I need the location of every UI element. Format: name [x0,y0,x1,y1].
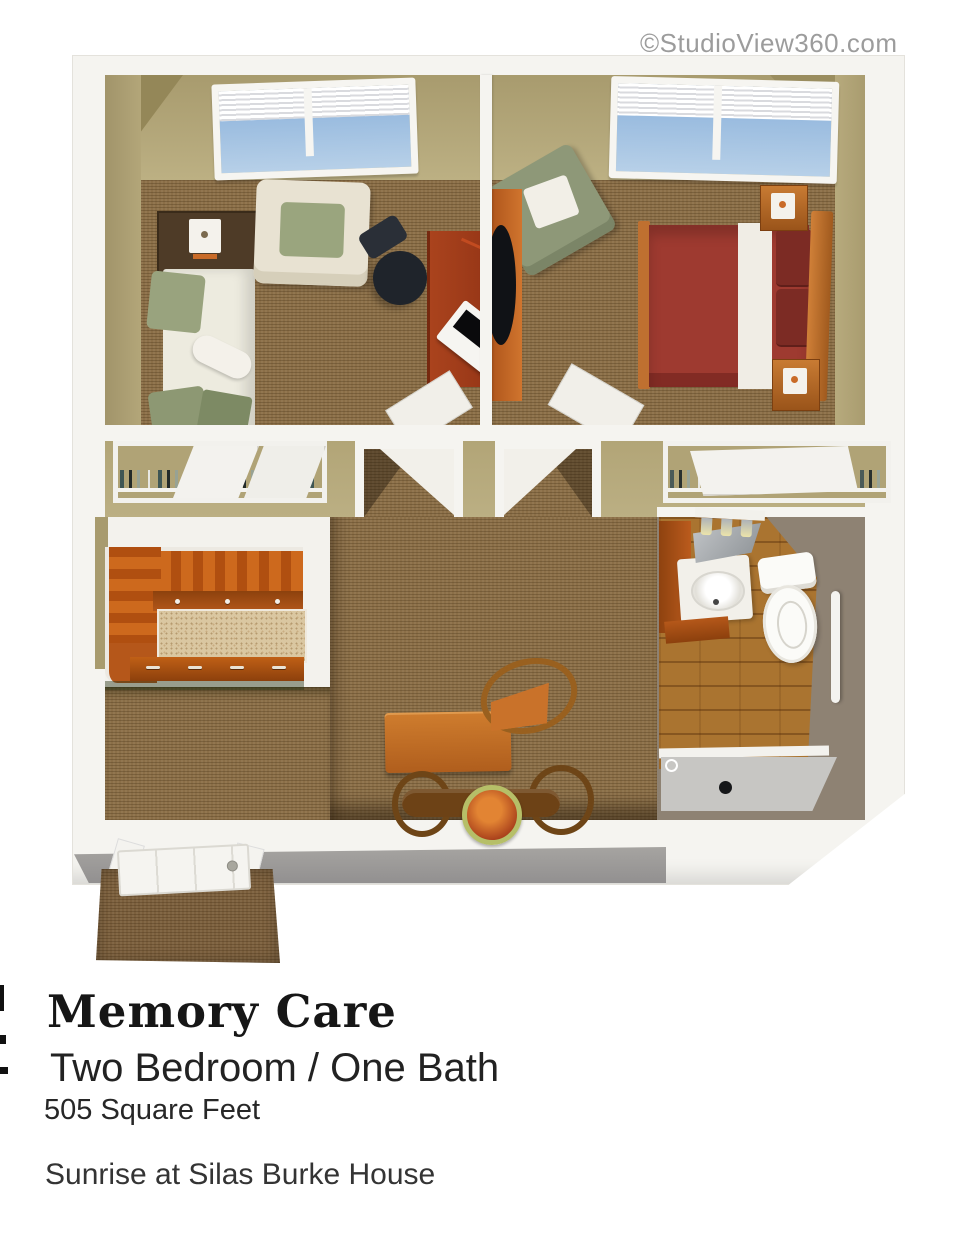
vanity-light [721,519,733,537]
bedroom-right [492,75,865,439]
lamp-finial [791,376,798,383]
door-frame [495,441,601,449]
bedroom-right-window [609,76,840,184]
lamp-base [193,254,217,259]
shower-drain [719,781,732,794]
bathroom [657,507,865,820]
lamp-finial [779,201,786,208]
bedroom-divider-wall [480,75,492,427]
bedroom-left-side-wall [105,75,141,439]
door-knob [227,860,239,872]
cabinet-knob [175,599,180,604]
entry-door [117,844,251,897]
office-chair-seat [373,251,427,305]
kitchen-carpet [105,687,330,820]
bedroom-left-window [211,77,418,180]
kitchen-countertop [157,609,307,663]
closet-left [113,441,327,503]
window-blinds [617,83,832,121]
drawer-pull [230,666,244,669]
lamp-finial [201,231,208,238]
drawer-pull [146,666,160,669]
pillow [146,270,206,333]
closet-right [663,441,891,503]
vanity-light [701,518,713,536]
table-lamp [783,368,807,394]
shower-floor [661,757,837,811]
door-frame [454,441,463,517]
window-blinds [219,85,410,122]
plan-subtitle: Two Bedroom / One Bath [50,1046,499,1091]
sliding-door [690,446,858,496]
chair-cushion [279,202,345,258]
plan-title: Memory Care [47,985,397,1038]
pillow-red [776,229,812,287]
doorway-left-bedroom [355,441,463,517]
fruit-bowl [462,785,522,845]
kitchen-lower-cabinets [130,657,304,681]
cabinet-knob [275,599,280,604]
glyph-fragment [0,1035,6,1044]
door-frame [495,441,504,517]
doorway-right-bedroom [495,441,601,517]
cabinet-knob [225,599,230,604]
facility-name: Sunrise at Silas Burke House [45,1158,435,1192]
drawer-pull [188,666,202,669]
plan-square-footage: 505 Square Feet [44,1094,260,1127]
glyph-fragment [0,985,4,1011]
hall-wall-top [105,425,865,441]
nightstand [772,359,820,411]
bedroom-right-side-wall [835,75,865,439]
kitchen-cabinet-face [153,591,303,611]
door-frame [355,441,364,517]
vanity-light [741,520,753,538]
kitchen-shadow [105,681,304,690]
screenshot-canvas: ©StudioView360.com [0,0,960,1242]
door-frame [355,441,463,449]
bedroom-left [105,75,480,439]
toilet-seat [775,600,809,650]
chair-pillow [522,174,580,229]
nightstand [760,185,808,231]
glyph-fragment [0,1067,8,1074]
bed-runner [738,223,772,389]
grab-bar [831,591,840,703]
hall-band [105,441,865,517]
floor-plan [72,55,905,885]
sink [691,571,745,611]
table-lamp [771,193,795,219]
window-mullion [712,86,722,160]
faucet [713,599,719,605]
drawer-pull [272,666,286,669]
door-frame [592,441,601,517]
nightstand-headboard [157,211,265,275]
armchair [253,179,371,287]
curtain-ring [665,759,678,772]
clipped-edge-text-fragment [0,985,6,1080]
table-lamp [189,219,221,253]
